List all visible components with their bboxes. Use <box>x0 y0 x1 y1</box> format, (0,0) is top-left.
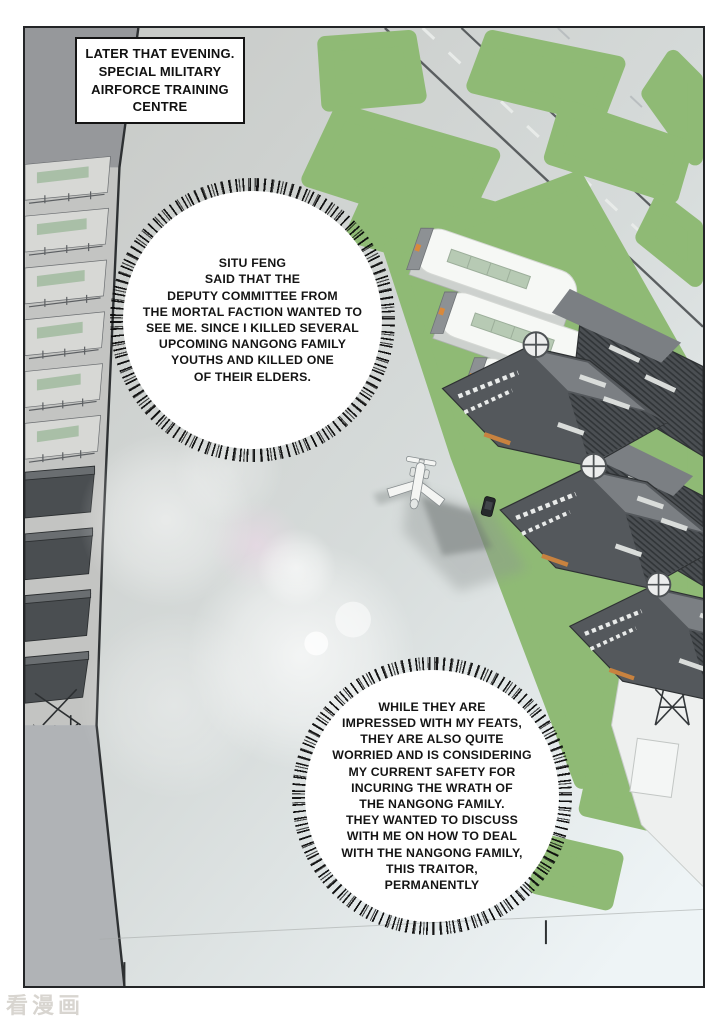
caption-box: LATER THAT EVENING. SPECIAL MILITARY AIR… <box>75 37 245 124</box>
speech-bubble-1-text: SITU FENG SAID THAT THE DEPUTY COMMITTEE… <box>143 255 362 385</box>
manga-page: LATER THAT EVENING. SPECIAL MILITARY AIR… <box>0 0 728 1028</box>
speech-bubble-2: WHILE THEY ARE IMPRESSED WITH MY FEATS, … <box>292 657 572 935</box>
speech-bubble-2-text: WHILE THEY ARE IMPRESSED WITH MY FEATS, … <box>332 699 531 894</box>
watermark: 看漫画 <box>6 988 84 1020</box>
speech-bubble-1: SITU FENG SAID THAT THE DEPUTY COMMITTEE… <box>110 178 395 462</box>
